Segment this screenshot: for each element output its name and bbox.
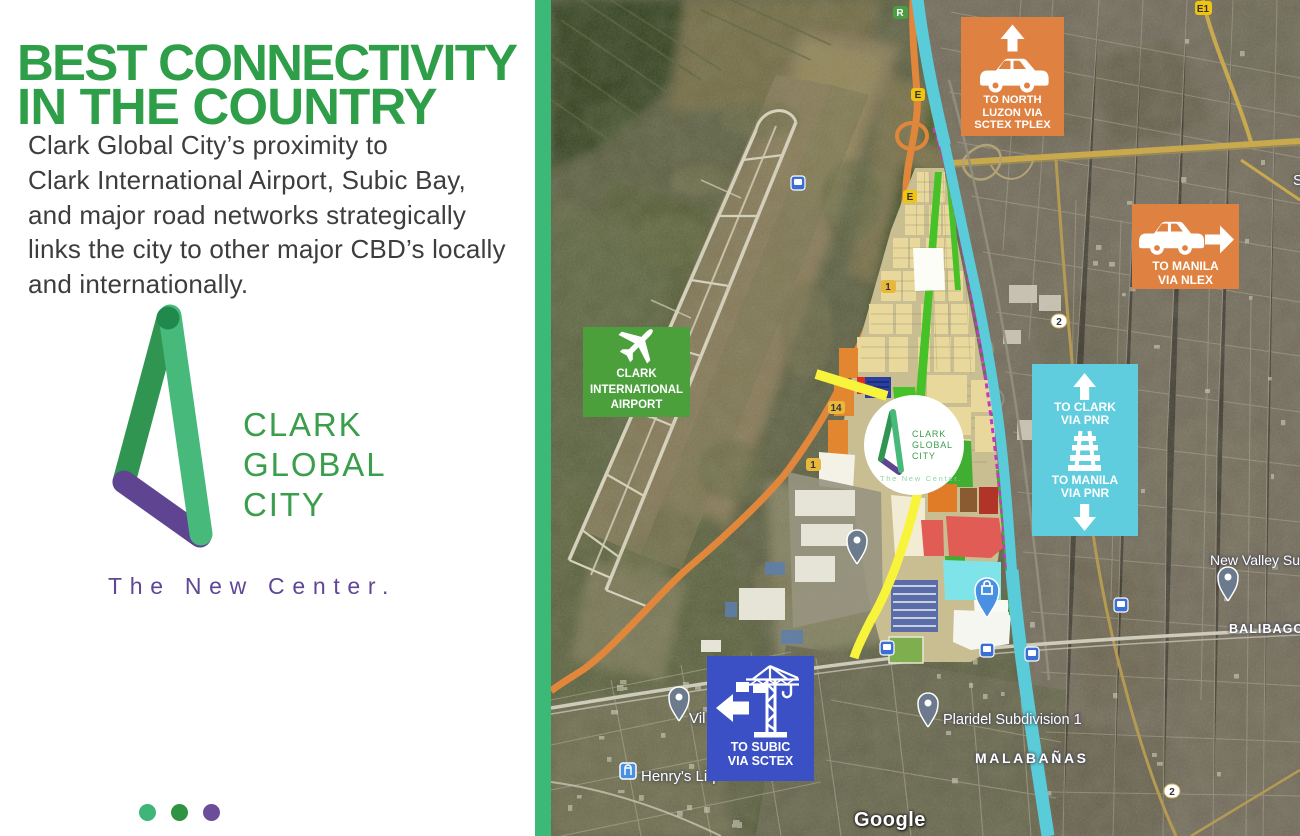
svg-text:CLARK: CLARK (243, 406, 363, 443)
svg-text:MALABAÑAS: MALABAÑAS (975, 749, 1089, 766)
svg-text:GLOBAL: GLOBAL (243, 446, 386, 483)
svg-text:1: 1 (810, 460, 816, 471)
svg-text:14: 14 (830, 403, 842, 414)
svg-text:CLARK: CLARK (912, 429, 946, 439)
svg-text:CITY: CITY (243, 486, 326, 523)
svg-text:Henry's Liq: Henry's Liq (641, 768, 716, 785)
svg-text:GLOBAL: GLOBAL (912, 440, 953, 450)
svg-text:1: 1 (885, 282, 891, 293)
svg-text:New Valley Sub: New Valley Sub (1210, 552, 1300, 568)
svg-text:E1: E1 (1197, 4, 1210, 15)
svg-text:2: 2 (1056, 317, 1062, 328)
svg-text:The New Center.: The New Center. (880, 474, 962, 483)
svg-text:S: S (1293, 172, 1300, 189)
svg-text:E: E (907, 192, 914, 203)
svg-text:2: 2 (1169, 787, 1175, 798)
svg-text:Vil: Vil (689, 710, 705, 727)
svg-text:Google: Google (854, 809, 926, 831)
svg-text:E: E (915, 90, 922, 101)
svg-text:CITY: CITY (912, 451, 936, 461)
svg-text:Plaridel Subdivision 1: Plaridel Subdivision 1 (943, 712, 1082, 728)
svg-text:BALIBAGO: BALIBAGO (1229, 622, 1300, 636)
svg-text:R: R (896, 8, 904, 19)
